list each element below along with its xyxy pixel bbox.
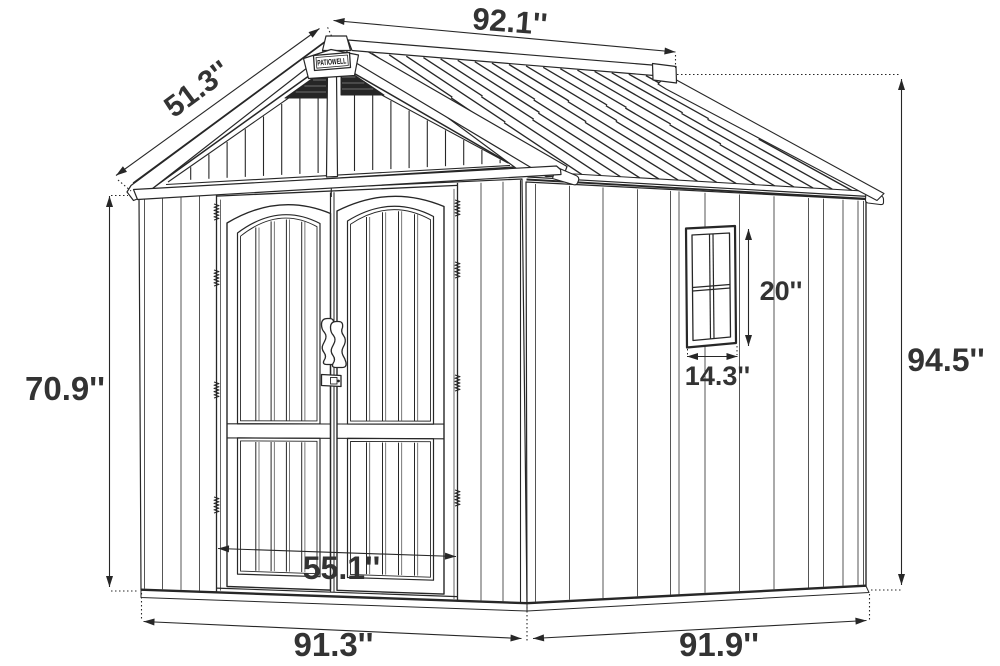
svg-text:91.9'': 91.9'' (679, 626, 759, 663)
svg-text:92.1'': 92.1'' (471, 1, 549, 42)
svg-text:14.3'': 14.3'' (685, 361, 750, 391)
svg-text:91.3'': 91.3'' (294, 626, 374, 663)
svg-text:70.9'': 70.9'' (25, 370, 105, 407)
svg-text:94.5'': 94.5'' (907, 342, 985, 378)
svg-text:55.1'': 55.1'' (303, 550, 381, 586)
svg-text:20'': 20'' (760, 276, 803, 306)
